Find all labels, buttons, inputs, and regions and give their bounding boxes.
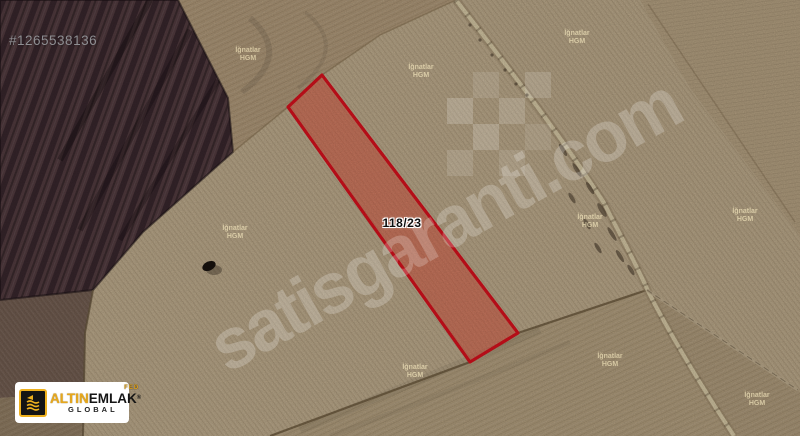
hgm-watermark-agency: HGM	[749, 400, 765, 407]
satellite-listing-photo: satisgaranti.com İğnatlar HGM İğnatlar H…	[0, 0, 800, 436]
brand-name-part2: EMLAK	[89, 391, 137, 406]
hgm-watermark-name: İğnatlar	[408, 64, 433, 71]
hgm-watermark-agency: HGM	[240, 55, 256, 62]
hgm-watermark: İğnatlar HGM	[597, 353, 622, 369]
altinemlak-emblem-icon	[19, 389, 47, 417]
hgm-watermark-name: İğnatlar	[402, 364, 427, 371]
hgm-watermark-agency: HGM	[413, 72, 429, 79]
brand-name-part1: ALTIN	[50, 391, 89, 406]
hgm-watermark: İğnatlar HGM	[402, 364, 427, 380]
hgm-watermark-agency: HGM	[407, 372, 423, 379]
hgm-watermark-name: İğnatlar	[235, 47, 260, 54]
hgm-watermark: İğnatlar HGM	[732, 208, 757, 224]
hgm-watermark-agency: HGM	[582, 222, 598, 229]
hgm-watermark: İğnatlar HGM	[564, 30, 589, 46]
hgm-watermark-agency: HGM	[227, 233, 243, 240]
brand-logo: FED ALTINEMLAK® GLOBAL	[15, 382, 129, 423]
hgm-watermark: İğnatlar HGM	[222, 225, 247, 241]
hgm-watermark: İğnatlar HGM	[744, 392, 769, 408]
hgm-watermark-name: İğnatlar	[597, 353, 622, 360]
hgm-watermark-name: İğnatlar	[564, 30, 589, 37]
hgm-watermark: İğnatlar HGM	[408, 64, 433, 80]
hgm-watermark: İğnatlar HGM	[577, 214, 602, 230]
hgm-watermark-name: İğnatlar	[744, 392, 769, 399]
parcel-number-label: 118/23	[382, 216, 421, 230]
brand-subtitle: GLOBAL	[68, 405, 141, 414]
hgm-watermark-name: İğnatlar	[222, 225, 247, 232]
registered-mark: ®	[137, 395, 141, 401]
photo-id-watermark: #1265538136	[9, 33, 97, 48]
hgm-watermark-agency: HGM	[569, 38, 585, 45]
brand-fed-label: FED	[124, 385, 139, 391]
hgm-watermark-agency: HGM	[602, 361, 618, 368]
hgm-watermark-name: İğnatlar	[732, 208, 757, 215]
brand-text: FED ALTINEMLAK® GLOBAL	[50, 392, 141, 414]
hgm-watermark: İğnatlar HGM	[235, 47, 260, 63]
hgm-watermark-name: İğnatlar	[577, 214, 602, 221]
hgm-watermark-agency: HGM	[737, 216, 753, 223]
